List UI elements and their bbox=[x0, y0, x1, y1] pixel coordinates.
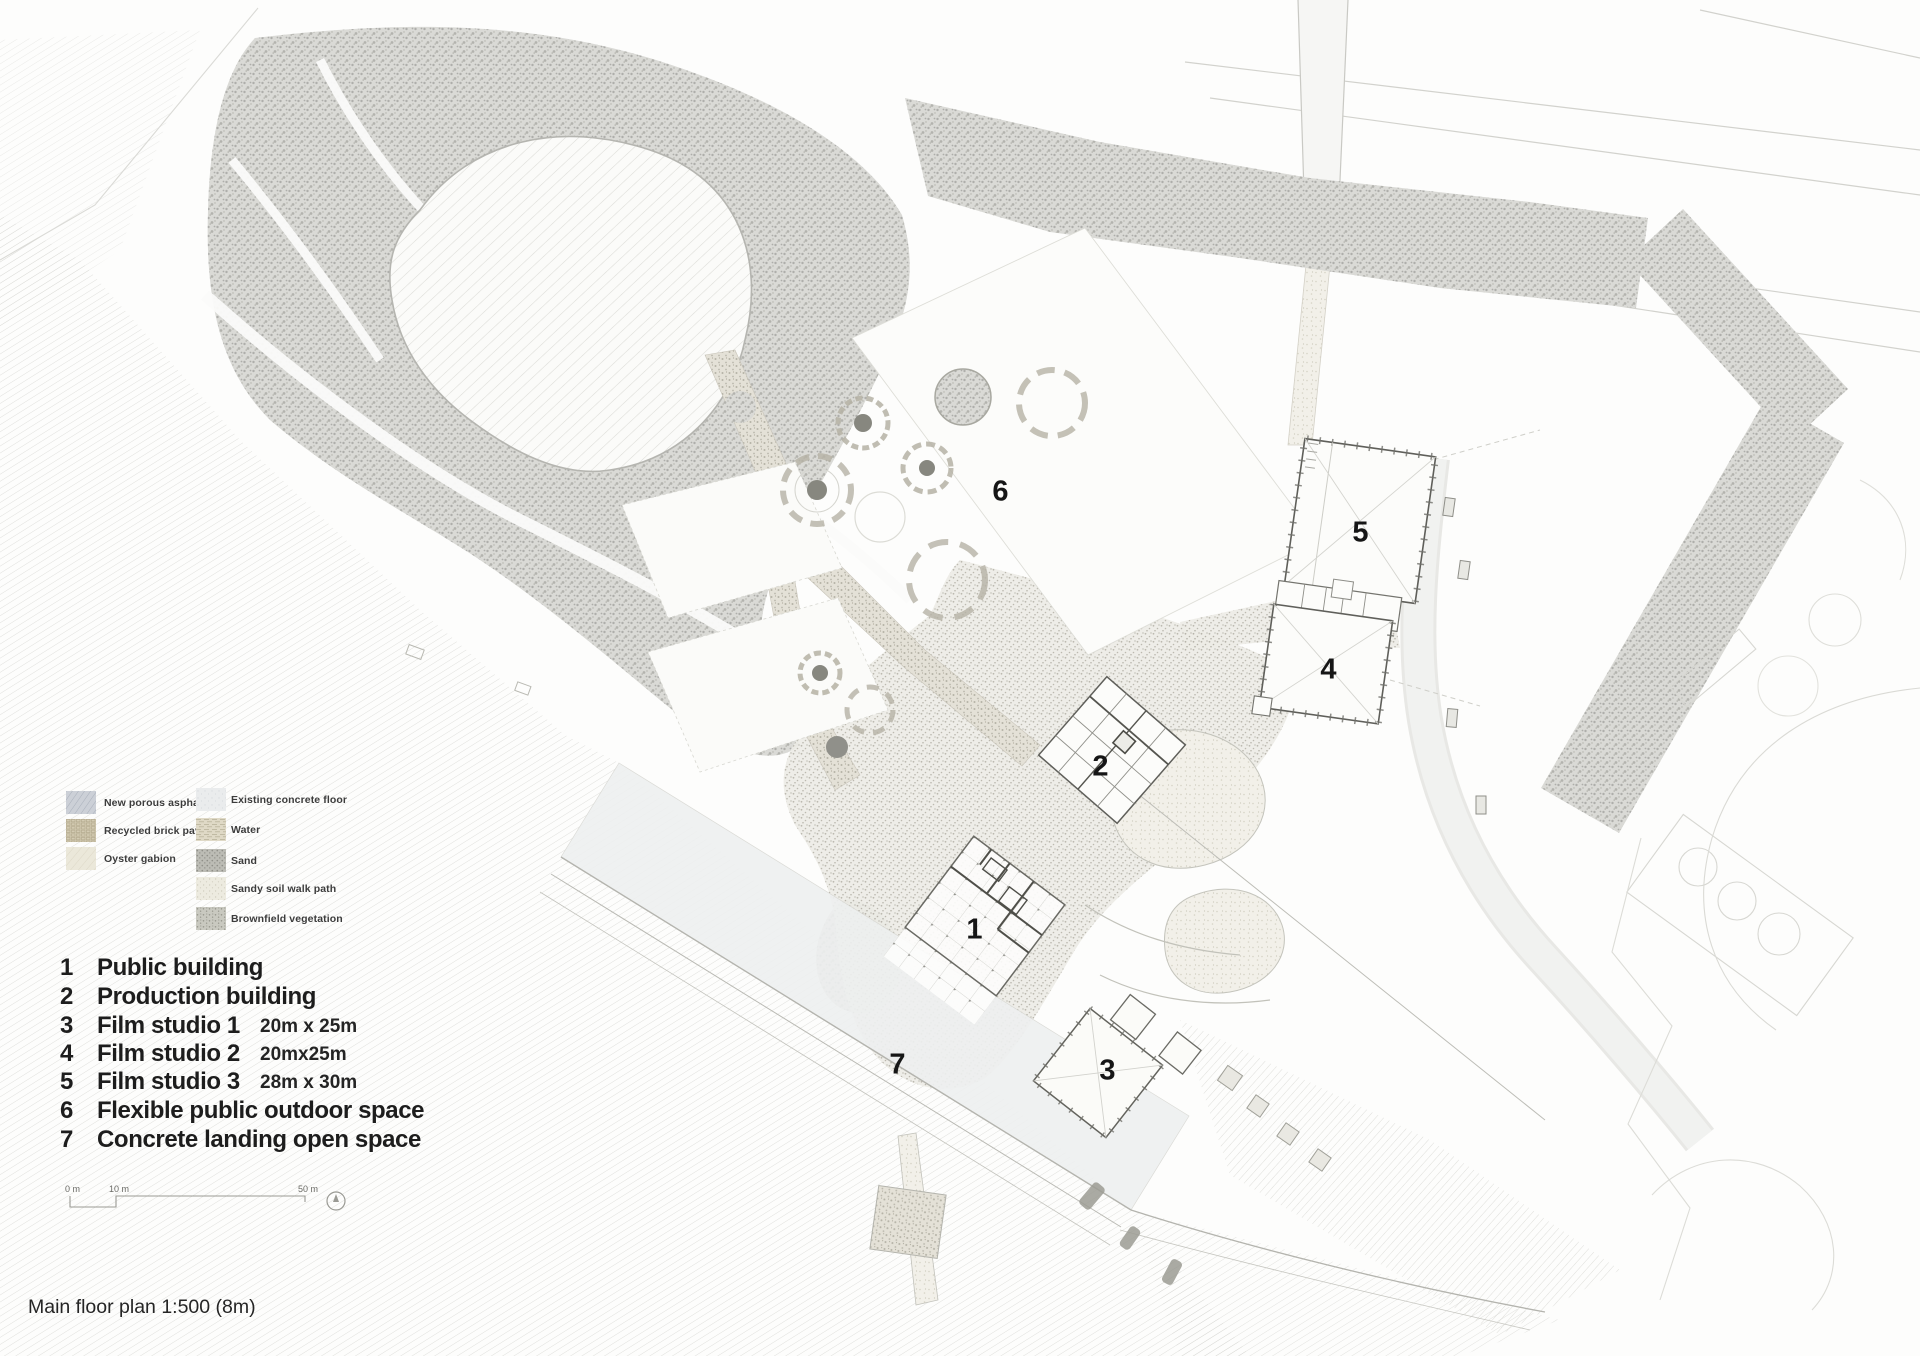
scale-label-50: 50 m bbox=[298, 1184, 318, 1194]
key-list: 1Public building 2Production building 3F… bbox=[60, 948, 530, 1153]
water-swatch-icon bbox=[196, 818, 226, 841]
concrete-swatch-icon bbox=[196, 788, 226, 811]
plan-label-1: 1 bbox=[966, 914, 981, 947]
north-arrow-icon bbox=[327, 1192, 345, 1210]
key-row: 4Film studio 220mx25m bbox=[60, 1040, 530, 1069]
plan-label-6: 6 bbox=[992, 476, 1007, 509]
key-row: 7Concrete landing open space bbox=[60, 1126, 530, 1155]
building-4-annex bbox=[1252, 696, 1272, 716]
sand-swatch-icon bbox=[196, 849, 226, 872]
legend: New porous asphalt Recycled brick paving… bbox=[66, 788, 426, 948]
brownfield-swatch-icon bbox=[196, 907, 226, 930]
sandy-soil-swatch-icon bbox=[196, 877, 226, 900]
key-row: 5Film studio 328m x 30m bbox=[60, 1068, 530, 1097]
plan-label-4: 4 bbox=[1320, 654, 1335, 687]
drawing-title: Main floor plan 1:500 (8m) bbox=[28, 1296, 256, 1319]
plan-label-3: 3 bbox=[1099, 1055, 1114, 1088]
oyster-swatch-icon bbox=[66, 847, 96, 870]
scale-bar-line bbox=[70, 1196, 305, 1207]
key-row: 6Flexible public outdoor space bbox=[60, 1097, 530, 1126]
brick-swatch-icon bbox=[66, 819, 96, 842]
asphalt-swatch-icon bbox=[66, 791, 96, 814]
site-plan-page: 1 2 3 4 5 6 7 New porous asphalt Recycle… bbox=[0, 0, 1920, 1356]
plan-label-5: 5 bbox=[1352, 517, 1367, 550]
key-row: 2Production building bbox=[60, 983, 530, 1012]
scale-bar: 0 m 10 m 50 m bbox=[53, 1180, 373, 1226]
plan-label-2: 2 bbox=[1092, 751, 1107, 784]
plan-label-7: 7 bbox=[889, 1049, 904, 1082]
scale-label-0: 0 m bbox=[65, 1184, 80, 1194]
key-row: 3Film studio 120m x 25m bbox=[60, 1012, 530, 1041]
scale-label-10: 10 m bbox=[109, 1184, 129, 1194]
key-row: 1Public building bbox=[60, 954, 530, 983]
